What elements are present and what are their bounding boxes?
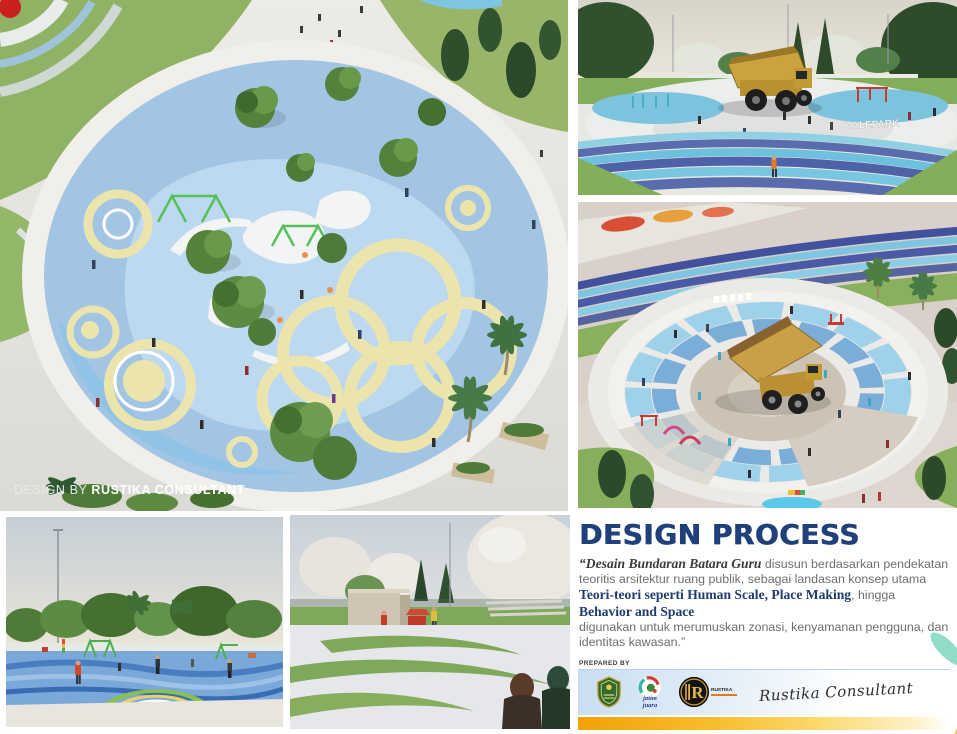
truck-front-scene: VALEPARK: [578, 0, 957, 195]
watermark-consultant-name: RUSTIKA CONSULTANT: [91, 483, 245, 497]
splash-zone-right: [808, 89, 948, 123]
rustika-monogram-icon: R: [678, 676, 710, 708]
playground-view-scene: [6, 517, 283, 727]
floral-wreath-icon: [883, 612, 957, 734]
playground-ground-view-render: [6, 517, 283, 727]
main-aerial-playground-render: DESIGN BY RUSTIKA CONSULTANT: [0, 0, 568, 511]
quote-segment-3: , hingga: [851, 588, 895, 602]
quote-behavior-bold: Behavior and Space: [579, 604, 694, 619]
quote-project-name: “Desain Bundaran Batara Guru: [579, 556, 761, 571]
truck-aerial-scene: [578, 202, 957, 508]
svg-text:R: R: [691, 683, 704, 702]
splash-zone-left: [592, 92, 724, 124]
shield-emblem-icon: [596, 676, 622, 708]
playground-aerial-scene: [0, 0, 568, 511]
truck-monument-front-render: VALEPARK: [578, 0, 957, 195]
rustika-monogram-logo: R RUSTIKA: [678, 676, 737, 708]
quote-theories-bold: Teori-teori seperti Human Scale, Place M…: [579, 587, 851, 602]
design-credit-watermark: DESIGN BY RUSTIKA CONSULTANT: [14, 483, 245, 497]
jatim-juara-logo: jatim juara: [638, 675, 662, 708]
floral-emblem: [883, 612, 957, 734]
design-process-heading: DESIGN PROCESS: [579, 521, 957, 549]
watermark-prefix: DESIGN BY: [14, 483, 91, 497]
pathway-view-render: [290, 515, 570, 729]
presentation-board: DESIGN BY RUSTIKA CONSULTANT: [0, 0, 957, 734]
pathway-scene: [290, 515, 570, 729]
rustika-logo-caption: RUSTIKA: [711, 688, 737, 697]
regency-shield-logo: [596, 676, 622, 708]
jatim-juara-caption: jatim juara: [643, 696, 657, 708]
truck-plaza-aerial-render: [578, 202, 957, 508]
